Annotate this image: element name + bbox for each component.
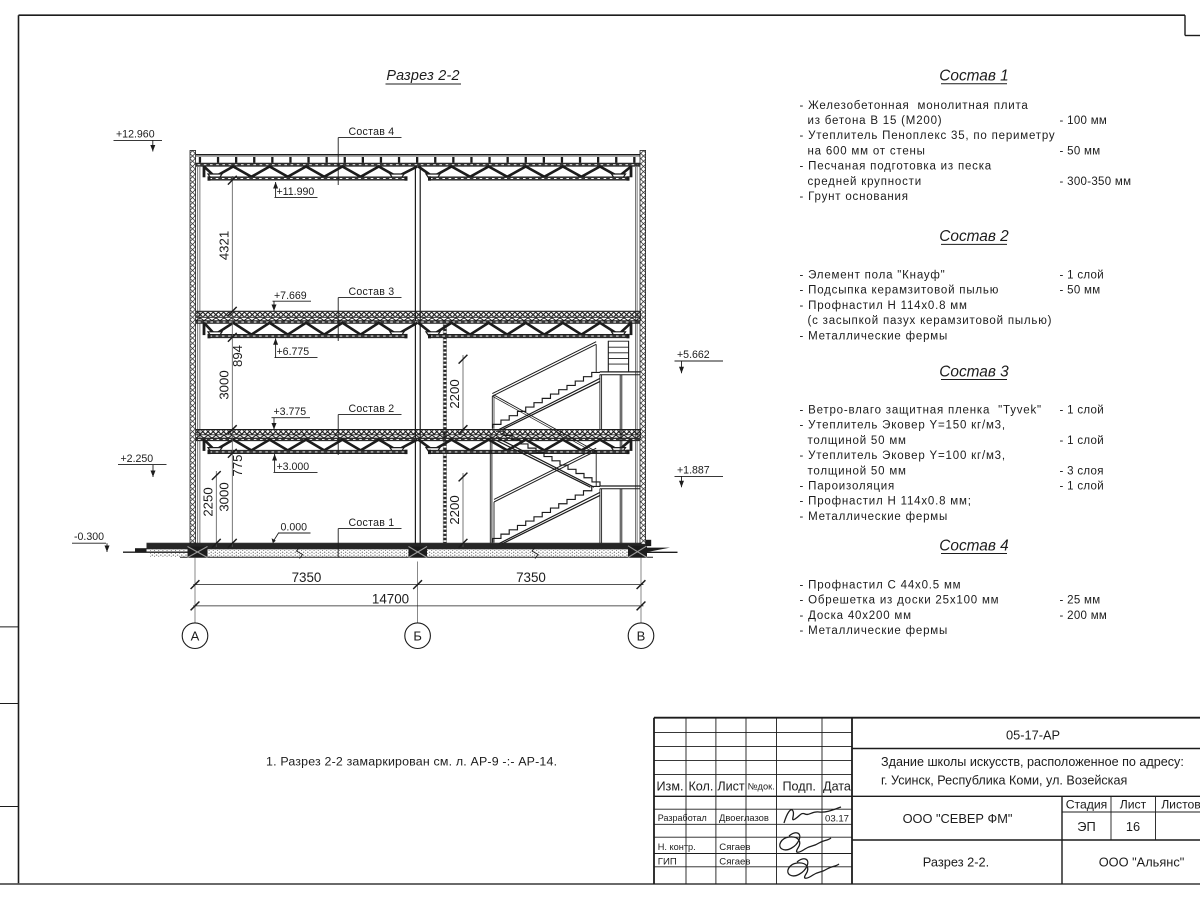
svg-text:толщиной 50 мм: толщиной 50 мм: [800, 465, 907, 477]
svg-text:- 50 мм: - 50 мм: [1060, 285, 1101, 297]
svg-text:- Металлические фермы: - Металлические фермы: [800, 625, 949, 637]
svg-text:ООО "СЕВЕР ФМ": ООО "СЕВЕР ФМ": [903, 811, 1013, 826]
svg-text:0.000: 0.000: [281, 522, 308, 534]
svg-text:- 1 слой: - 1 слой: [1060, 405, 1104, 417]
svg-text:- Грунт основания: - Грунт основания: [800, 191, 909, 203]
svg-text:- Доска 40х200 мм: - Доска 40х200 мм: [800, 610, 912, 622]
svg-text:Лист: Лист: [717, 780, 745, 794]
svg-text:4321: 4321: [217, 231, 232, 260]
svg-text:- 1 слой: - 1 слой: [1060, 481, 1104, 493]
svg-text:- Утеплитель Эковер Y=100 кг/м: - Утеплитель Эковер Y=100 кг/м3,: [800, 450, 1006, 462]
svg-text:7350: 7350: [292, 570, 322, 585]
svg-text:Б: Б: [413, 628, 422, 643]
svg-text:из бетона В 15 (М200): из бетона В 15 (М200): [800, 115, 943, 127]
svg-text:- Пароизоляция: - Пароизоляция: [800, 481, 896, 493]
svg-text:ООО "Альянс": ООО "Альянс": [1099, 855, 1185, 870]
svg-text:г. Усинск, Республика Коми, ул: г. Усинск, Республика Коми, ул. Возейска…: [881, 773, 1127, 787]
svg-text:- 300-350 мм: - 300-350 мм: [1060, 176, 1132, 188]
svg-text:- 200 мм: - 200 мм: [1060, 610, 1108, 622]
svg-text:В: В: [637, 628, 646, 643]
svg-text:Разрез 2-2.: Разрез 2-2.: [923, 855, 989, 870]
svg-text:толщиной 50 мм: толщиной 50 мм: [800, 435, 907, 447]
svg-text:- 3 слоя: - 3 слоя: [1060, 465, 1104, 477]
svg-text:03.17: 03.17: [825, 813, 849, 824]
svg-text:на 600 мм от стены: на 600 мм от стены: [800, 145, 926, 157]
svg-text:3000: 3000: [217, 482, 232, 511]
svg-text:- Обрешетка из доски 25х100 мм: - Обрешетка из доски 25х100 мм: [800, 595, 1000, 607]
svg-text:+5.662: +5.662: [677, 349, 710, 361]
svg-text:+2.250: +2.250: [121, 453, 154, 465]
svg-text:+6.775: +6.775: [277, 346, 310, 358]
svg-text:7350: 7350: [516, 570, 546, 585]
svg-text:Подп.: Подп.: [782, 780, 815, 794]
svg-text:- 50 мм: - 50 мм: [1060, 145, 1101, 157]
svg-text:Состав 1: Состав 1: [939, 68, 1008, 85]
svg-text:средней крупности: средней крупности: [800, 176, 922, 188]
svg-text:Состав 2: Состав 2: [349, 403, 395, 415]
svg-text:- Железобетонная монолитная п: - Железобетонная монолитная плита: [800, 100, 1029, 112]
svg-text:№док.: №док.: [748, 782, 775, 792]
svg-text:- 1 слой: - 1 слой: [1060, 270, 1104, 282]
svg-text:Состав 2: Состав 2: [939, 228, 1009, 245]
svg-text:Здание школы искусств, располо: Здание школы искусств, расположенное по …: [881, 755, 1184, 769]
svg-text:ГИП: ГИП: [658, 857, 677, 868]
svg-text:Двоеглазов: Двоеглазов: [719, 812, 769, 823]
svg-text:- Профнастил С 44х0.5 мм: - Профнастил С 44х0.5 мм: [800, 580, 962, 592]
svg-text:+12.960: +12.960: [116, 129, 155, 141]
svg-text:(с засыпкой пазух керамзитовой: (с засыпкой пазух керамзитовой пылью): [800, 315, 1053, 327]
svg-text:Разработал: Разработал: [658, 813, 707, 823]
svg-text:Сягаев: Сягаев: [719, 842, 750, 853]
svg-text:Изм.: Изм.: [657, 780, 684, 794]
svg-text:- 100 мм: - 100 мм: [1060, 115, 1108, 127]
svg-text:3000: 3000: [217, 370, 232, 399]
svg-text:Состав 4: Состав 4: [349, 126, 395, 138]
svg-text:- Утеплитель Эковер Y=150 кг/м: - Утеплитель Эковер Y=150 кг/м3,: [800, 420, 1006, 432]
svg-text:А: А: [191, 628, 200, 643]
svg-text:- 1 слой: - 1 слой: [1060, 435, 1104, 447]
svg-text:2200: 2200: [447, 495, 462, 524]
svg-text:Кол.: Кол.: [688, 780, 713, 794]
svg-text:14700: 14700: [372, 591, 409, 606]
svg-text:05-17-АР: 05-17-АР: [1006, 727, 1060, 742]
svg-text:Состав 4: Состав 4: [939, 537, 1008, 554]
svg-text:Сягаев: Сягаев: [719, 857, 750, 868]
svg-text:- Песчаная подготовка из песка: - Песчаная подготовка из песка: [800, 161, 993, 173]
svg-text:- Профнастил Н 114х0.8 мм: - Профнастил Н 114х0.8 мм: [800, 300, 968, 312]
svg-text:+3.000: +3.000: [277, 461, 310, 473]
svg-text:- Металлические фермы: - Металлические фермы: [800, 330, 949, 342]
svg-text:Состав 1: Состав 1: [349, 517, 395, 529]
svg-text:- Ветро-влаго защитная пленка: - Ветро-влаго защитная пленка "Tyvek": [800, 405, 1042, 417]
svg-text:- Элемент пола "Кнауф": - Элемент пола "Кнауф": [800, 270, 946, 282]
svg-text:2250: 2250: [201, 487, 216, 516]
svg-text:- Металлические фермы: - Металлические фермы: [800, 511, 949, 523]
svg-text:+3.775: +3.775: [274, 406, 307, 418]
svg-text:Дата: Дата: [823, 780, 851, 794]
svg-text:+11.990: +11.990: [277, 186, 315, 198]
svg-text:Н. контр.: Н. контр.: [658, 842, 696, 852]
svg-text:- Профнастил Н 114х0.8 мм;: - Профнастил Н 114х0.8 мм;: [800, 496, 972, 508]
svg-text:+1.887: +1.887: [677, 465, 710, 477]
svg-text:Стадия: Стадия: [1066, 798, 1108, 812]
svg-text:2200: 2200: [447, 379, 462, 408]
svg-text:894: 894: [230, 345, 245, 367]
svg-text:- 25 мм: - 25 мм: [1060, 595, 1101, 607]
svg-text:Листов: Листов: [1161, 798, 1200, 812]
svg-text:ЭП: ЭП: [1077, 819, 1095, 834]
svg-text:Состав 3: Состав 3: [349, 286, 395, 298]
svg-text:-0.300: -0.300: [74, 531, 104, 543]
svg-text:1. Разрез 2-2 замаркирован см.: 1. Разрез 2-2 замаркирован см. л. АР-9 -…: [266, 755, 557, 769]
svg-text:Лист: Лист: [1120, 798, 1147, 812]
svg-text:16: 16: [1126, 819, 1140, 834]
svg-text:+7.669: +7.669: [274, 290, 307, 302]
svg-text:- Подсыпка керамзитовой пылью: - Подсыпка керамзитовой пылью: [800, 285, 1000, 297]
svg-text:Разрез 2-2: Разрез 2-2: [386, 68, 459, 84]
svg-text:- Утеплитель Пеноплекс 35, по: - Утеплитель Пеноплекс 35, по периметру: [800, 130, 1056, 142]
svg-text:775: 775: [230, 454, 245, 476]
svg-text:Состав 3: Состав 3: [939, 363, 1009, 380]
